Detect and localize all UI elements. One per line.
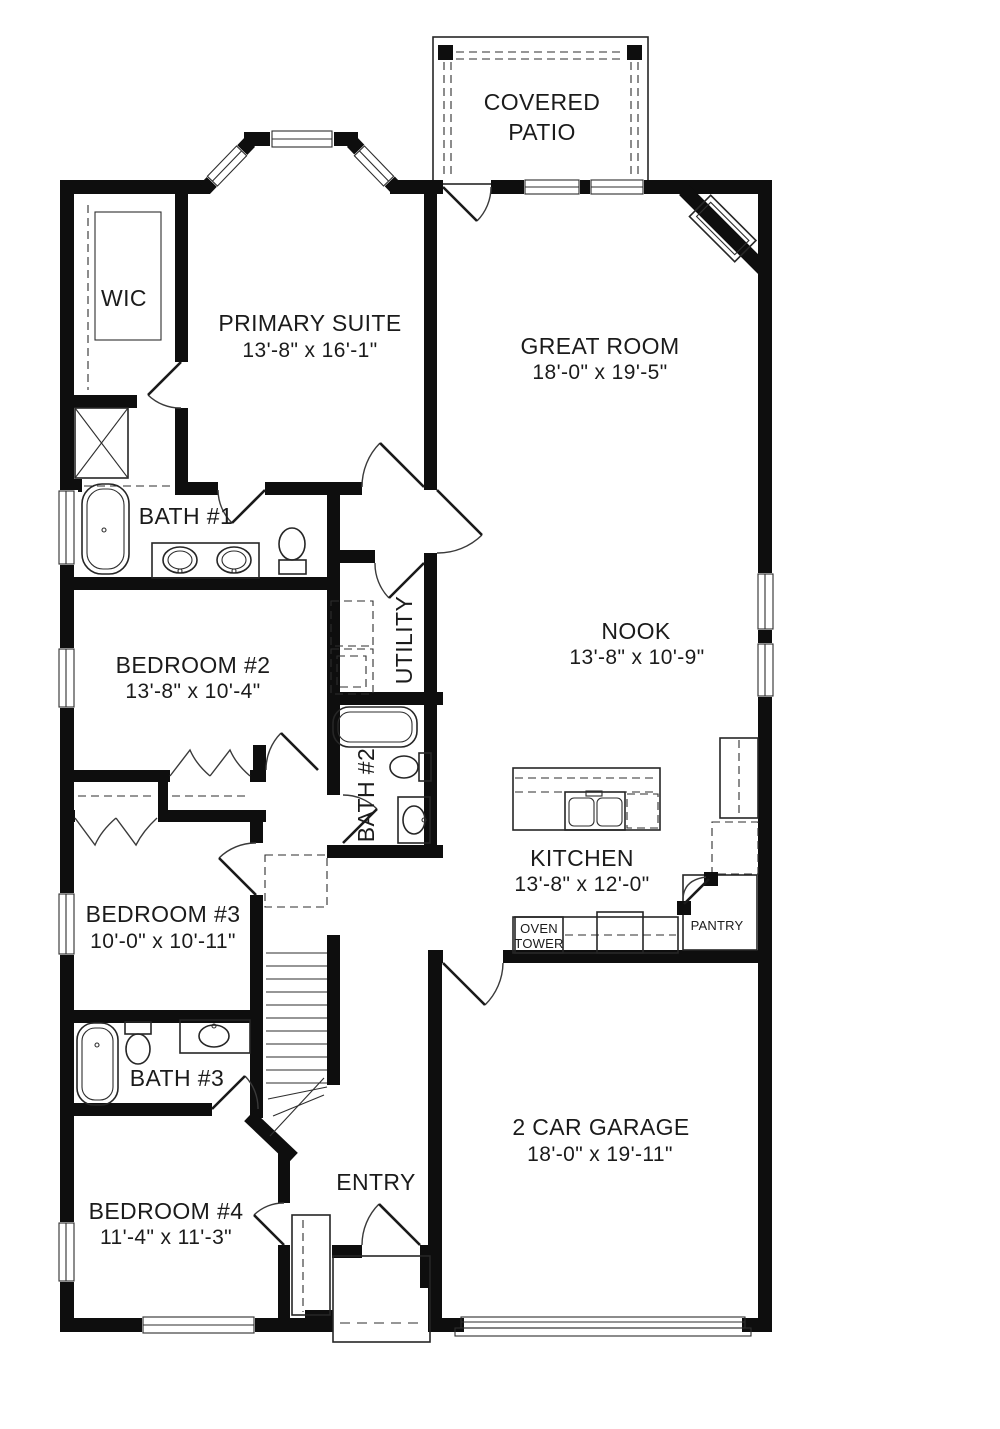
- hall-great-room-door: [437, 490, 482, 553]
- bath1-vanity: [152, 543, 259, 578]
- entry-closet: [292, 1215, 330, 1315]
- window-nook-right-2: [754, 643, 776, 697]
- covered-patio-label-line1: COVERED: [484, 89, 601, 115]
- primary-suite-label: PRIMARY SUITE: [218, 310, 401, 336]
- utility-door: [375, 563, 424, 598]
- bedroom4-label: BEDROOM #4: [89, 1198, 244, 1224]
- tall-cabinets: [720, 738, 758, 818]
- bath3-toilet: [125, 1022, 151, 1064]
- shower: [75, 408, 128, 478]
- bath1-fixtures: [82, 484, 306, 578]
- bedroom3-dims: 10'-0" x 10'-11": [90, 930, 236, 953]
- primary-suite-dims: 13'-8" x 16'-1": [242, 339, 377, 362]
- porch-jamb-left: [305, 1310, 333, 1332]
- bedroom2-dims: 13'-8" x 10'-4": [125, 680, 260, 703]
- wic-door: [148, 362, 181, 408]
- utility-label: UTILITY: [391, 596, 417, 684]
- patio-post: [438, 45, 453, 60]
- bath2-tub: [333, 707, 417, 747]
- bedroom3-door: [219, 843, 256, 895]
- right-exterior-wall: [758, 180, 772, 1332]
- floor-plan-drawing: COVERED PATIO WIC PRIMARY SUITE 13'-8" x…: [0, 0, 1000, 1429]
- entry-label: ENTRY: [336, 1169, 416, 1195]
- window-bath1-left: [56, 490, 78, 565]
- dishwasher: [627, 794, 658, 828]
- oven-tower-label-line2: TOWER: [514, 936, 563, 951]
- bath1-tub: [82, 484, 129, 574]
- patio-post: [627, 45, 642, 60]
- stairs: [266, 953, 327, 1136]
- window-greatroom-top-1: [524, 178, 580, 198]
- front-door: [362, 1204, 420, 1245]
- stair-direction-line: [270, 1078, 324, 1136]
- stair-corner-wall: [249, 1116, 293, 1158]
- bath1-label: BATH #1: [139, 503, 233, 529]
- oven-tower-label-line1: OVEN: [520, 921, 558, 936]
- window-greatroom-top-2: [590, 178, 644, 198]
- bath3-tub: [77, 1023, 118, 1105]
- kitchen-dims: 13'-8" x 12'-0": [514, 873, 649, 896]
- patio-door: [443, 187, 491, 221]
- bath2-fixtures: [333, 707, 431, 843]
- bedroom3-closet-bifold: [75, 818, 157, 845]
- bath3-vanity: [180, 1020, 250, 1053]
- garage-dims: 18'-0" x 19'-11": [527, 1143, 673, 1166]
- primary-suite-door: [362, 443, 424, 487]
- bath2-label: BATH #2: [353, 748, 379, 842]
- bath3-fixtures: [77, 1020, 250, 1105]
- window-bedroom4-left: [56, 1222, 78, 1282]
- pantry-closet: [677, 872, 757, 950]
- window-bay-left: [205, 144, 249, 188]
- floor-plan-canvas: COVERED PATIO WIC PRIMARY SUITE 13'-8" x…: [0, 0, 1000, 1429]
- bedroom2-door: [266, 733, 318, 770]
- great-room-dims: 18'-0" x 19'-5": [532, 361, 667, 384]
- kitchen-label: KITCHEN: [530, 845, 634, 871]
- covered-patio-label-line2: PATIO: [508, 119, 576, 145]
- kitchen-sink: [565, 791, 625, 830]
- garage-entry-door: [443, 963, 503, 1005]
- window-bay-center: [270, 128, 334, 150]
- primary-great-room-wall: [424, 194, 437, 490]
- window-nook-right-1: [754, 573, 776, 630]
- left-exterior-wall: [60, 180, 74, 1332]
- refrigerator: [712, 822, 758, 874]
- bedroom3-label: BEDROOM #3: [86, 901, 241, 927]
- fireplace-corner-wall: [684, 190, 766, 272]
- bath1-toilet: [279, 528, 306, 574]
- bedroom2-label: BEDROOM #2: [116, 652, 271, 678]
- window-bedroom3-left: [56, 893, 78, 955]
- front-porch: [333, 1256, 430, 1342]
- nook-label: NOOK: [601, 618, 671, 644]
- great-room-label: GREAT ROOM: [520, 333, 679, 359]
- bedroom4-dims: 11'-4" x 11'-3": [100, 1226, 232, 1249]
- wic-label: WIC: [101, 285, 147, 311]
- window-bay-right: [352, 144, 396, 188]
- garage-door: [455, 1314, 751, 1336]
- nook-dims: 13'-8" x 10'-9": [569, 646, 704, 669]
- kitchen-island: [513, 768, 660, 830]
- pantry-label: PANTRY: [691, 918, 744, 933]
- garage-label: 2 CAR GARAGE: [512, 1114, 689, 1140]
- window-bedroom2-left: [56, 648, 78, 708]
- range: [597, 912, 643, 953]
- hall-ceiling-break: [265, 855, 327, 907]
- window-bedroom4-bottom: [142, 1314, 255, 1336]
- bedroom2-closet-bifold: [170, 750, 250, 776]
- bedroom4-door: [254, 1203, 284, 1245]
- bath3-label: BATH #3: [130, 1065, 224, 1091]
